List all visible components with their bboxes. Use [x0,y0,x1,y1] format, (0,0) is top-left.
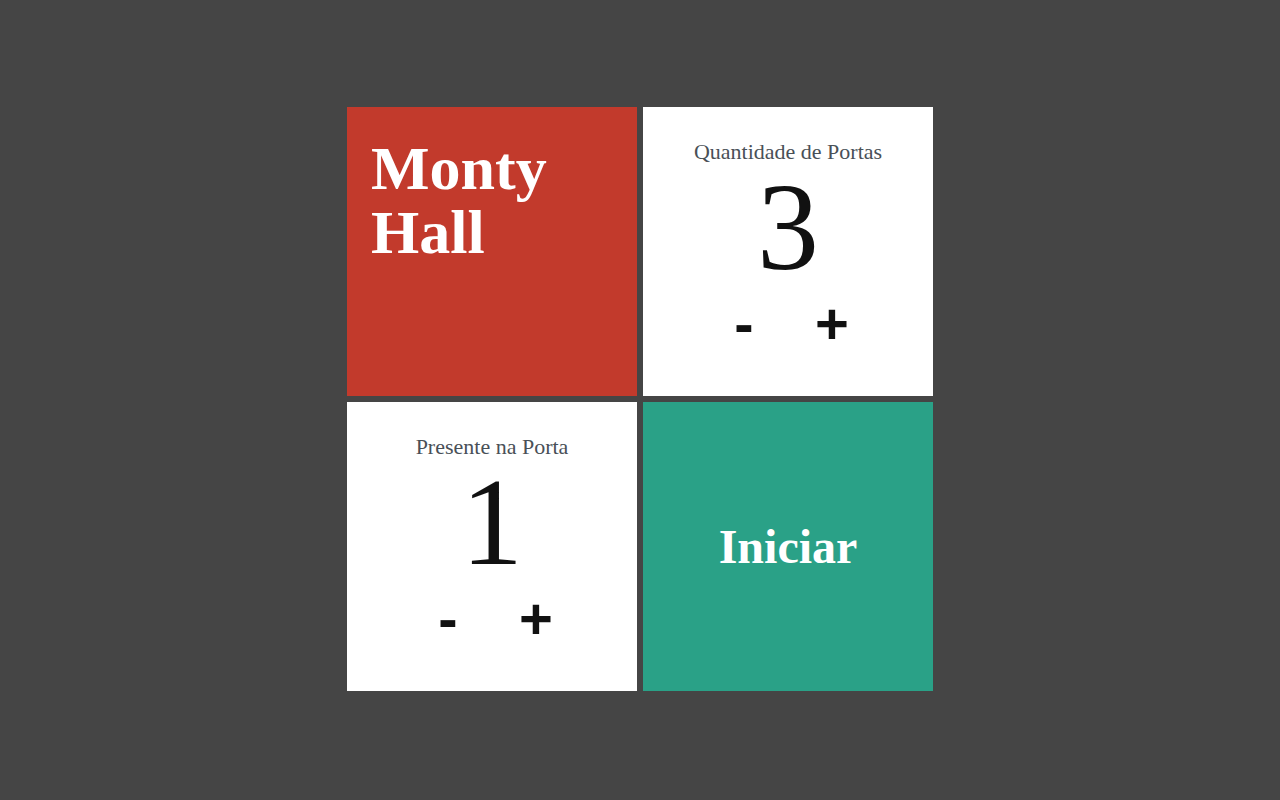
doors-decrement-button[interactable]: - [723,295,765,353]
doors-quantity-value: 3 [643,166,933,290]
doors-quantity-stepper: - + [643,295,933,353]
app-title: Monty Hall [371,136,617,265]
monty-hall-app: Monty Hall Quantidade de Portas 3 - + Pr… [347,107,933,691]
doors-quantity-panel: Quantidade de Portas 3 - + [643,107,933,396]
start-button[interactable]: Iniciar [643,402,933,691]
prize-increment-button[interactable]: + [515,590,557,648]
prize-door-value: 1 [347,461,637,585]
prize-decrement-button[interactable]: - [427,590,469,648]
start-button-label: Iniciar [719,519,858,574]
prize-door-panel: Presente na Porta 1 - + [347,402,637,691]
doors-increment-button[interactable]: + [811,295,853,353]
title-panel: Monty Hall [347,107,637,396]
prize-door-stepper: - + [347,590,637,648]
app-background: Monty Hall Quantidade de Portas 3 - + Pr… [0,0,1280,800]
